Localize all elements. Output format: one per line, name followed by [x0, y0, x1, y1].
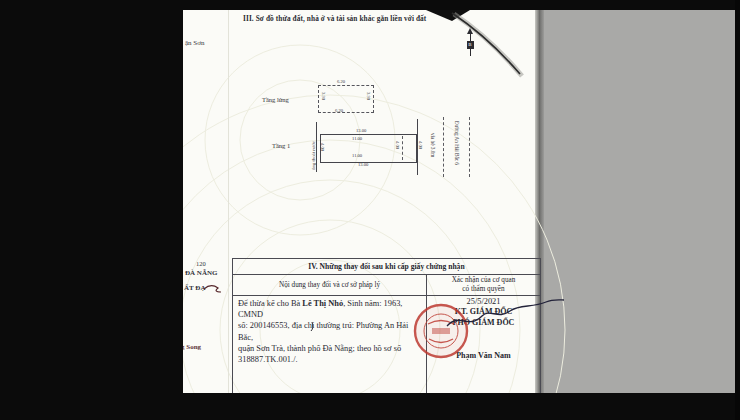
- authority-confirmation-cell: 25/5/2021 KT. GIÁM ĐỐC PHÓ GIÁM ĐỐC Phạm…: [427, 295, 540, 328]
- sidewalk-label: vỉa hè 3.0m: [430, 133, 436, 157]
- col2-header: Xác nhận của cơ quan có thẩm quyền: [427, 275, 540, 295]
- parcel-dim-right: 4.00: [418, 141, 423, 149]
- marker-b-box: B: [467, 41, 474, 49]
- parcel-dim-inner-top: 11.00: [352, 136, 362, 141]
- col2-header-line2: có thẩm quyền: [462, 285, 504, 294]
- table-backdrop: [544, 10, 735, 393]
- change-content-text: Để thừa kế cho Bà Lê Thị Nhỏ, Sinh năm: …: [238, 298, 424, 365]
- section4-title: IV. Những thay đổi sau khi cấp giấy chứn…: [233, 259, 540, 275]
- mezzanine-dim-top: 6.20: [337, 79, 345, 84]
- top-black-bar: [0, 0, 740, 10]
- right-black-edge: [735, 0, 740, 420]
- parcel-dim-outer-bottom: 13.00: [358, 162, 368, 167]
- floor1-left-boundary-line: [316, 122, 317, 172]
- fragment-at-da: ẤT ĐẠ: [184, 284, 205, 292]
- street-label: Đường An Hải Bắc 6: [454, 121, 460, 165]
- body-line3: quận Sơn Trà, thành phố Đà Nẵng; theo hồ…: [238, 344, 401, 353]
- parcel-dim-left: 4.00: [320, 143, 325, 151]
- heir-name: Lê Thị Nhỏ: [302, 299, 343, 308]
- fragment-number: 120: [196, 260, 206, 267]
- mezzanine-dim-left: 3.90: [321, 92, 326, 100]
- signer-title-line2: PHÓ GIÁM ĐỐC: [427, 317, 540, 328]
- col2-header-line1: Xác nhận của cơ quan: [452, 276, 516, 285]
- paper-fold-line: [228, 10, 229, 393]
- section4-table: IV. Những thay đổi sau khi cấp giấy chứn…: [232, 258, 541, 395]
- bottom-black-bar: [0, 393, 740, 420]
- body-line4: 318887.TK.001./.: [238, 355, 298, 364]
- street-dashed-line: [469, 117, 470, 177]
- confirmation-date: 25/5/2021: [427, 297, 540, 306]
- parcel-dim-inner-right: 4.00: [395, 141, 400, 149]
- mezzanine-dim-right: 3.90: [366, 92, 371, 100]
- body-line2: số: 200146553, địa chỉ thường trú: Phườn…: [238, 321, 408, 341]
- scanned-certificate-photo: III. Sơ đồ thửa đất, nhà ở và tài sản kh…: [0, 0, 740, 420]
- parcel-dim-inner-bottom: 11.00: [352, 153, 362, 158]
- signer-title-line1: KT. GIÁM ĐỐC: [427, 306, 540, 317]
- col1-header: Nội dung thay đổi và cơ sở pháp lý: [233, 275, 426, 295]
- fragment-da-nang: ĐÀ NẴNG: [185, 269, 217, 277]
- fragment-quan-son: ận Sơn: [185, 39, 204, 47]
- mezzanine-dim-bottom: 6.20: [335, 108, 343, 113]
- mezzanine-label: Tầng lửng: [262, 96, 289, 103]
- floor1-label: Tầng 1: [272, 142, 290, 149]
- house-front-dashed-line: [402, 136, 403, 160]
- drain-label: ống thoát nước: [311, 141, 316, 170]
- signer-name: Phạm Văn Nam: [427, 351, 540, 360]
- section3-title: III. Sơ đồ thửa đất, nhà ở và tài sản kh…: [243, 14, 443, 23]
- sidewalk-dashed-line: [443, 117, 444, 177]
- fragment-song: g Song: [181, 343, 201, 351]
- parcel-dim-outer-top: 13.00: [356, 128, 366, 133]
- body-line1-pre: Để thừa kế cho Bà: [238, 299, 302, 308]
- left-black-border: [0, 0, 183, 420]
